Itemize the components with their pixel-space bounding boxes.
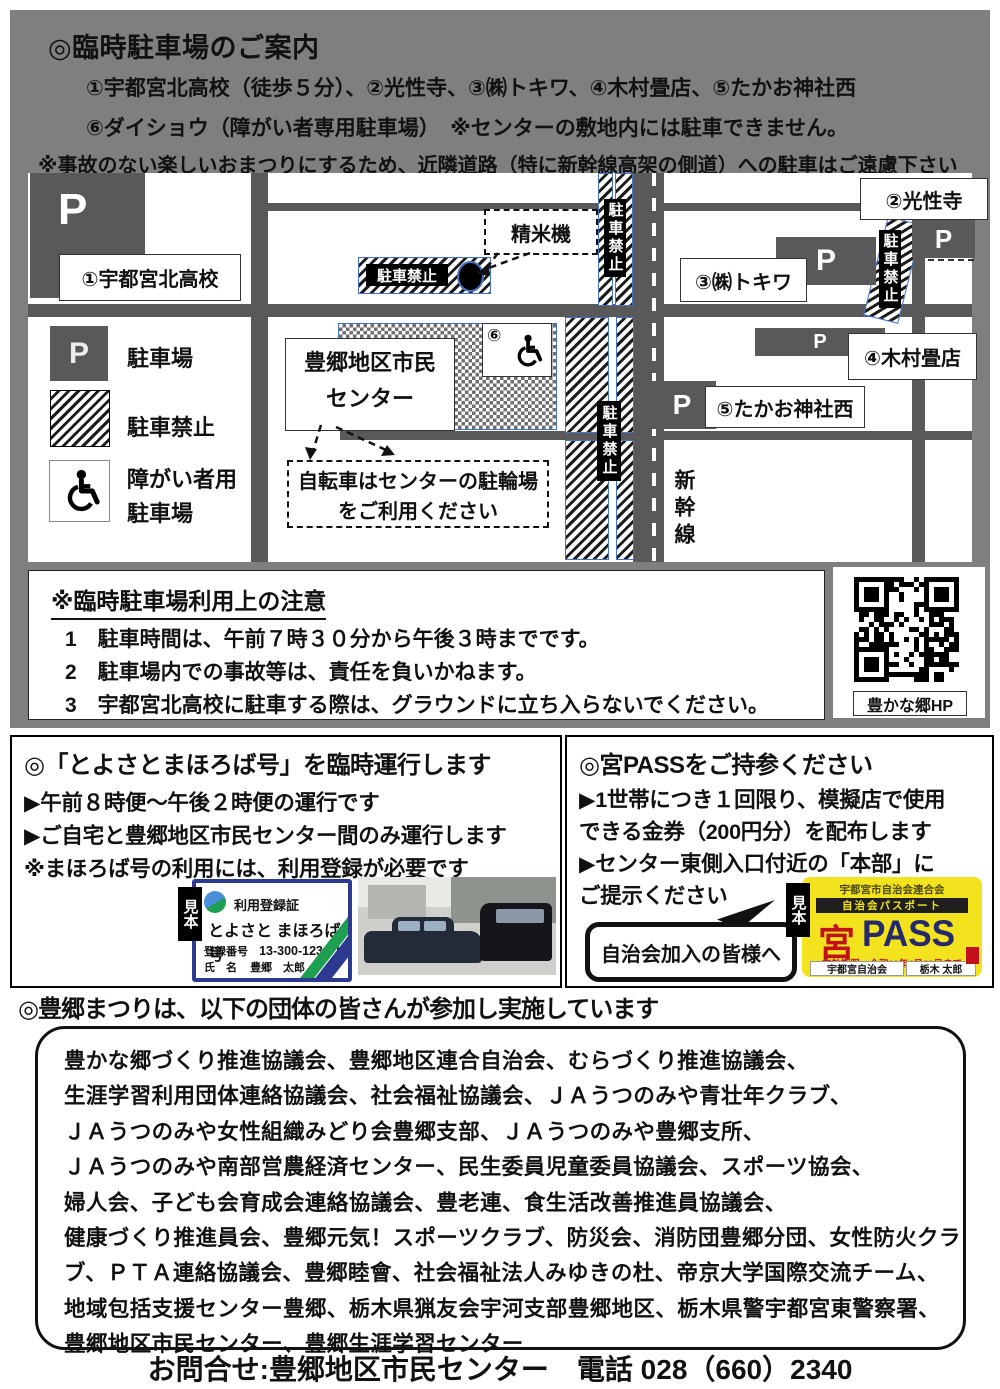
road-shinkansen-main <box>645 173 664 562</box>
shinkansen-label: 新幹線 <box>668 469 698 550</box>
speech-bubble: 自治会加入の皆様へ <box>585 922 797 982</box>
road-center-dashes <box>652 173 656 562</box>
taxi-photo-window <box>398 921 420 931</box>
legend-no-parking-label: 駐車禁止 <box>127 410 215 442</box>
parking-p-letter: P <box>813 331 826 354</box>
rice-mill-label: 精米機 <box>484 209 598 255</box>
usage-note-2: 2 駐車場内での事故等は、責任を負いかねます。 <box>65 656 537 686</box>
parking-map: 駐車禁止 駐車禁止 駐車禁止 駐車禁止 精米機 ⑥ 豊郷地区市民 センター <box>28 173 972 562</box>
wheelchair-icon <box>58 467 102 515</box>
legend-parking-swatch: P <box>50 326 108 381</box>
miyapass-line2: できる金券（200円分）を配布します <box>579 815 932 846</box>
wheelchair-icon <box>510 333 544 369</box>
site-6-number: ⑥ <box>487 326 501 346</box>
card-holder-name: 豊郷 太郎 <box>250 962 305 974</box>
qr-caption: 豊かな郷HP <box>853 691 967 716</box>
taxi-photo-building2 <box>368 885 426 919</box>
road-vertical-left <box>251 173 268 562</box>
miyapass-org: 宇都宮市自治会連合会 <box>802 882 982 897</box>
usage-notes-panel: ※臨時駐車場利用上の注意 1 駐車時間は、午前７時３０分から午後３時までです。 … <box>28 570 825 720</box>
boundary-dashed-line <box>928 259 974 261</box>
participants-heading: ◎豊郷まつりは、以下の団体の皆さんが参加し実施しています <box>18 989 658 1024</box>
miyapass-line1: ▶1世帯につき１回限り、模擬店で使用 <box>579 783 945 814</box>
sample-tag: 見本 <box>178 887 202 941</box>
participants-line: ＪＡうつのみや女性組織みどり会豊郷支部、ＪＡうつのみや豊郷支所、 <box>64 1115 961 1150</box>
miyapass-line3: ▶センター東側入口付近の「本部」に <box>579 847 934 878</box>
sample-tag: 見本 <box>786 883 810 937</box>
participants-line: ブ、ＰＴＡ連絡協議会、豊郷睦會、社会福祉法人みゆきの杜、帝京大学国際交流チーム、 <box>64 1256 961 1291</box>
registration-card: 利用登録証 とよさと まほろば号 登録番号 13-300-123-01 氏 名 … <box>192 879 352 982</box>
parking-sites-line: ①宇都宮北高校（徒歩５分）、②光性寺、③㈱トキワ、④木村畳店、⑤たかお神社西 <box>86 72 856 102</box>
participants-box: 豊かな郷づくり推進協議会、豊郷地区連合自治会、むらづくり推進協議会、 生涯学習利… <box>35 1026 966 1350</box>
card-reg-label: 登録番号 <box>204 946 248 958</box>
participants-line: ＪＡうつのみや南部営農経済センター、民生委員児童委員協議会、スポーツ協会、 <box>64 1150 961 1185</box>
miyapass-holder-left: 宇都宮自治会 <box>810 961 904 976</box>
taxi-photo-van-window <box>496 909 544 923</box>
usage-note-1: 1 駐車時間は、午前７時３０分から午後３時までです。 <box>65 623 600 653</box>
bicycle-note-line1: 自転車はセンターの駐輪場 <box>289 467 547 497</box>
participants-line: 健康づくり推進員会、豊郷元気！スポーツクラブ、防災会、消防団豊郷分団、女性防火ク… <box>64 1221 961 1256</box>
miyapass-box: ◎宮PASSをご持参ください ▶1世帯につき１回限り、模擬店で使用 できる金券（… <box>565 735 994 988</box>
no-parking-strip-horizontal: 駐車禁止 <box>358 257 491 294</box>
legend-parking-label: 駐車場 <box>127 341 193 373</box>
parking-p-letter: P <box>816 244 836 278</box>
miyapass-card: 宇都宮市自治会連合会 自治会パスポート 宮 PASS 有効期限 令和11年4月3… <box>802 877 982 977</box>
parking-p-letter: P <box>673 389 692 421</box>
legend-disabled-label: 障がい者用 駐車場 <box>127 463 237 531</box>
site-label-tatami: ④木村畳店 <box>848 333 977 380</box>
parking-p-letter: P <box>935 224 952 255</box>
parking-p-letter: P <box>58 185 87 235</box>
parking-sites-line2: ⑥ダイショウ（障がい者専用駐車場） ※センターの敷地内には駐車できません。 <box>86 112 848 142</box>
parking-p-letter: P <box>69 337 89 371</box>
community-center-label: 豊郷地区市民 センター <box>285 338 455 431</box>
disabled-parking-site-6: ⑥ <box>482 323 552 377</box>
rice-mill-spot-marker <box>457 261 484 292</box>
taxi-photo-window <box>424 921 446 931</box>
taxi-photo-sedan <box>364 931 482 963</box>
site-label-tokiwa: ③㈱トキワ <box>680 258 807 302</box>
site-label-temple: ②光性寺 <box>860 178 988 220</box>
participants-line: 婦人会、子ども会育成会連絡協議会、豊老連、食生活改善推進員協議会、 <box>64 1186 961 1221</box>
mahoroba-line2: ▶ご自宅と豊郷地区市民センター間のみ運行します <box>24 819 507 850</box>
qr-panel: 豊かな郷HP <box>833 567 985 718</box>
parking-block-temple: P <box>912 220 975 258</box>
participants-list: 豊かな郷づくり推進協議会、豊郷地区連合自治会、むらづくり推進協議会、 生涯学習利… <box>64 1044 961 1363</box>
qr-code <box>854 577 964 687</box>
miyapass-pass: PASS <box>862 913 955 955</box>
no-parking-tag: 駐車禁止 <box>879 230 901 308</box>
mahoroba-box: ◎「とよさとまほろば号」を臨時運行します ▶午前８時便～午後２時便の運行です ▶… <box>10 735 562 988</box>
legend-disabled-line1: 障がい者用 <box>127 463 237 497</box>
card-holder-label: 氏 名 <box>204 962 237 974</box>
mahoroba-logo-icon <box>204 891 226 913</box>
miyapass-red-tab <box>966 947 979 964</box>
card-holder-line: 氏 名 豊郷 太郎 <box>204 959 305 975</box>
usage-notes-title: ※臨時駐車場利用上の注意 <box>51 582 326 620</box>
bicycle-note: 自転車はセンターの駐輪場 をご利用ください <box>287 460 549 528</box>
mahoroba-title: ◎「とよさとまほろば号」を臨時運行します <box>24 745 491 780</box>
miyapass-title: ◎宮PASSをご持参ください <box>579 745 873 780</box>
taxi-photo <box>358 877 556 975</box>
miyapass-line4: ご提示ください <box>579 879 727 910</box>
participants-line: 生涯学習利用団体連絡協議会、社会福祉協議会、ＪＡうつのみや青壮年クラブ、 <box>64 1079 961 1114</box>
community-center-line2: センター <box>286 381 454 417</box>
participants-line: 豊かな郷づくり推進協議会、豊郷地区連合自治会、むらづくり推進協議会、 <box>64 1044 961 1079</box>
card-heading: 利用登録証 <box>234 895 299 914</box>
site-label-school: ①宇都宮北高校 <box>59 254 241 301</box>
legend-disabled-line2: 駐車場 <box>127 497 237 531</box>
no-parking-tag: 駐車禁止 <box>366 264 448 286</box>
road-horizontal-main <box>28 304 972 317</box>
legend-disabled-swatch <box>49 460 110 522</box>
miyapass-passport-bar: 自治会パスポート <box>816 898 968 913</box>
bicycle-note-line2: をご利用ください <box>289 497 547 527</box>
no-parking-tag: 駐車禁止 <box>604 199 626 277</box>
mahoroba-line1: ▶午前８時便～午後２時便の運行です <box>24 786 379 817</box>
community-center-line1: 豊郷地区市民 <box>286 345 454 381</box>
parking-guide-section: ◎臨時駐車場のご案内 ①宇都宮北高校（徒歩５分）、②光性寺、③㈱トキワ、④木村畳… <box>10 10 990 728</box>
site-label-shrine: ⑤たかお神社西 <box>705 386 865 428</box>
usage-note-3: 3 宇都宮北高校に駐車する際は、グラウンドに立ち入らないでください。 <box>65 689 769 719</box>
road-shinkansen-side <box>633 173 645 562</box>
section-title: ◎臨時駐車場のご案内 <box>48 26 320 65</box>
participants-line: 地域包括支援センター豊郷、栃木県猟友会宇河支部豊郷地区、栃木県警宇都宮東警察署、 <box>64 1292 961 1327</box>
no-parking-tag: 駐車禁止 <box>597 401 621 481</box>
contact-footer: お問合せ:豊郷地区市民センター 電話 028（660）2340 <box>0 1348 1000 1388</box>
legend-no-parking-swatch <box>50 390 110 447</box>
